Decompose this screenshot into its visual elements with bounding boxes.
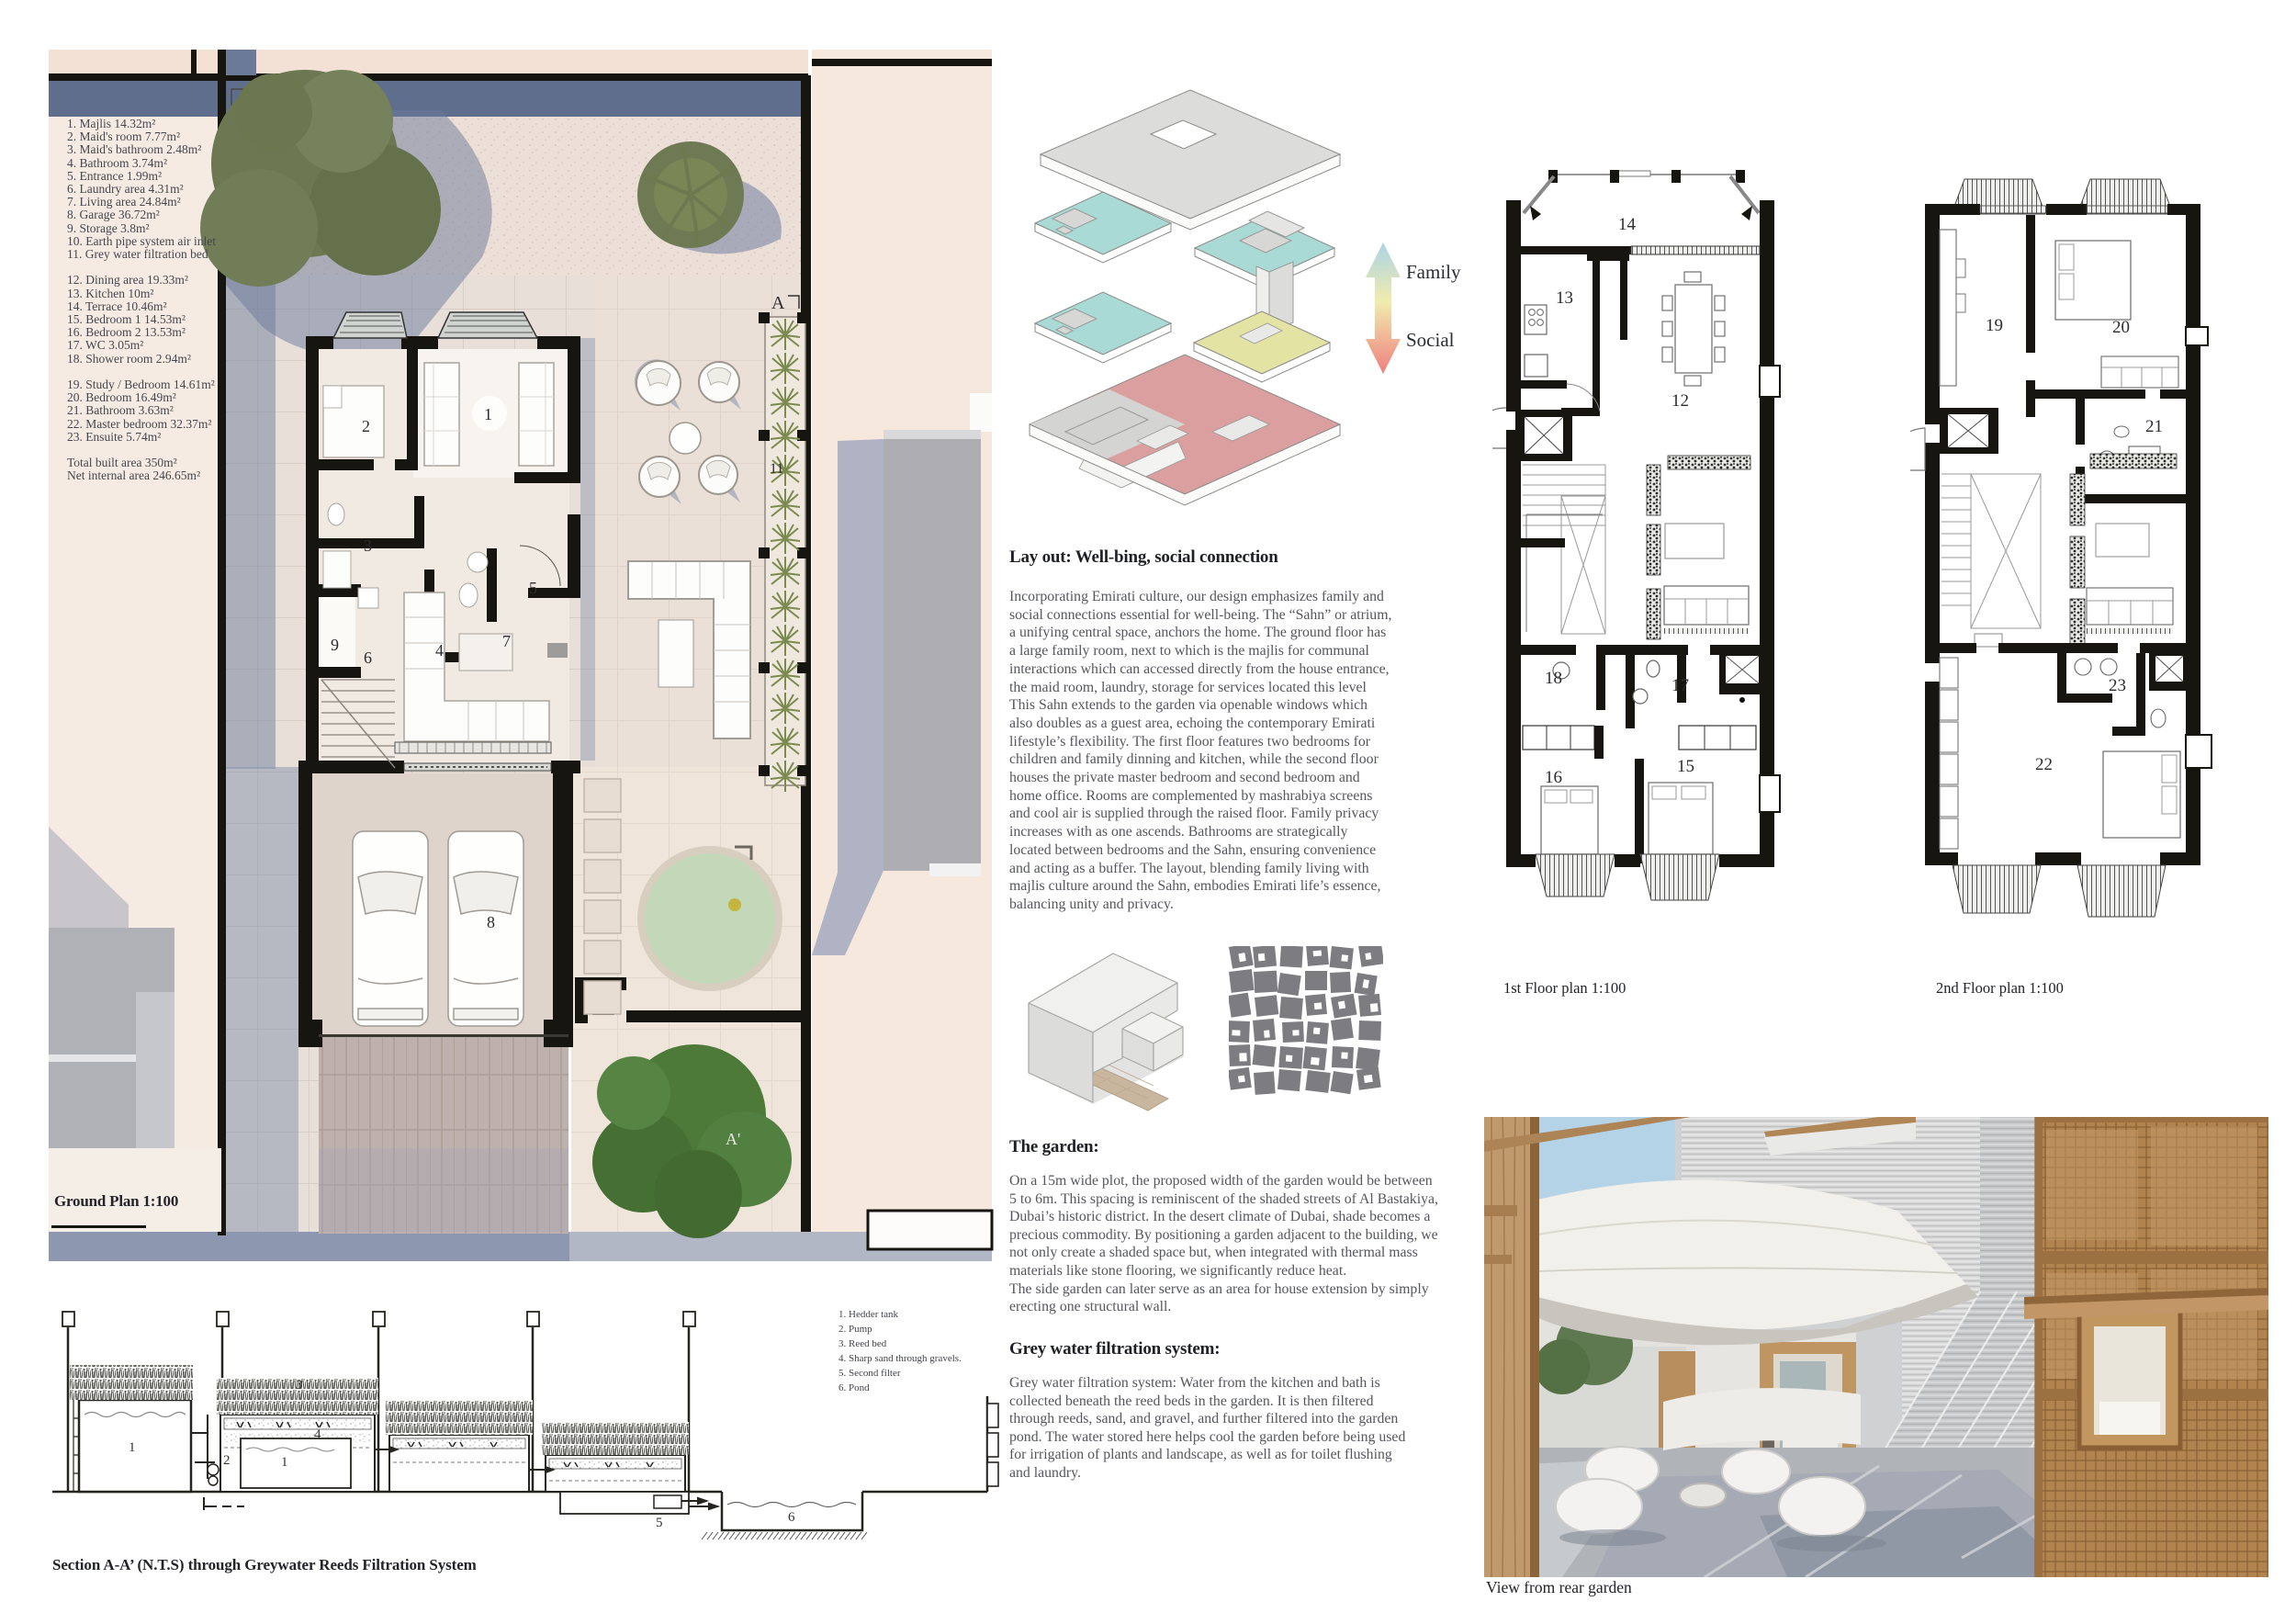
svg-text:A': A' xyxy=(726,1130,740,1148)
svg-text:17: 17 xyxy=(1671,676,1689,695)
svg-text:8: 8 xyxy=(487,913,495,931)
svg-text:Family: Family xyxy=(1406,261,1461,283)
svg-text:1: 1 xyxy=(281,1455,288,1470)
svg-text:13: 13 xyxy=(1556,288,1573,308)
svg-text:3: 3 xyxy=(296,1378,303,1393)
svg-text:14: 14 xyxy=(1618,215,1637,234)
svg-text:A: A xyxy=(771,293,785,313)
svg-text:5: 5 xyxy=(529,579,537,597)
svg-text:6: 6 xyxy=(788,1510,795,1525)
svg-text:3: 3 xyxy=(364,536,372,555)
svg-text:7: 7 xyxy=(502,632,511,650)
svg-text:21: 21 xyxy=(2145,417,2163,436)
svg-text:4: 4 xyxy=(314,1427,321,1442)
svg-text:23: 23 xyxy=(2109,676,2126,695)
svg-text:20: 20 xyxy=(2112,318,2130,337)
svg-text:Social: Social xyxy=(1406,329,1455,351)
svg-text:16: 16 xyxy=(1545,768,1562,787)
svg-text:15: 15 xyxy=(1677,757,1694,776)
svg-text:1: 1 xyxy=(484,405,492,423)
svg-text:11: 11 xyxy=(770,461,783,477)
svg-text:5: 5 xyxy=(656,1516,663,1530)
svg-text:18: 18 xyxy=(1545,669,1562,688)
svg-text:6: 6 xyxy=(364,648,372,667)
svg-text:19: 19 xyxy=(1986,316,2003,335)
svg-text:9: 9 xyxy=(331,636,339,654)
svg-text:4: 4 xyxy=(435,641,444,660)
svg-text:1: 1 xyxy=(129,1440,136,1455)
svg-text:2: 2 xyxy=(223,1453,231,1468)
svg-text:22: 22 xyxy=(2035,755,2053,774)
svg-text:2: 2 xyxy=(362,417,370,435)
svg-text:12: 12 xyxy=(1671,391,1689,411)
